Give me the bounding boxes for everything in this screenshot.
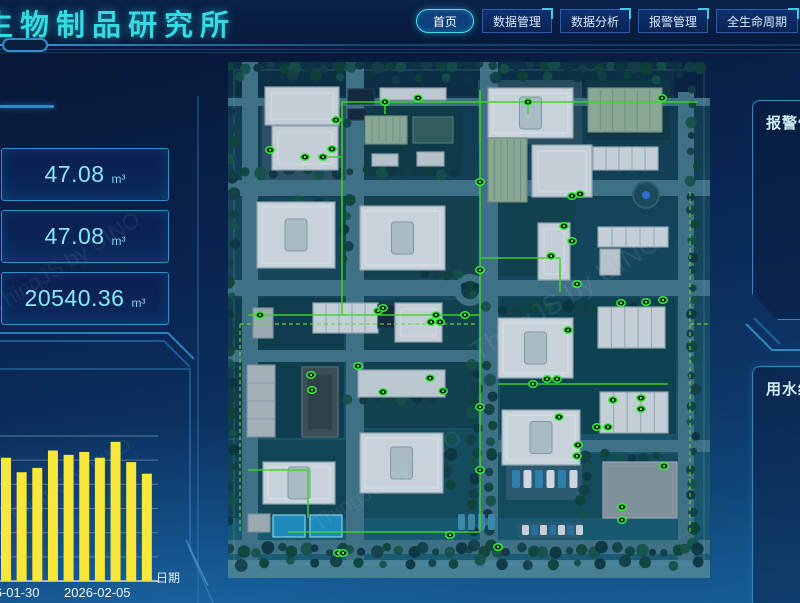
- left-top-accent-line: [0, 105, 54, 108]
- nav-tab-4[interactable]: 全生命周期: [716, 9, 798, 33]
- nav-tab-1[interactable]: 数据管理: [482, 9, 552, 33]
- building: [532, 145, 592, 197]
- building: [358, 370, 445, 397]
- water-stats-panel: 用水统计: [752, 366, 800, 603]
- stat-box-0: 47.08m³: [1, 148, 169, 201]
- x-tick-label: 2026-01-30: [0, 585, 40, 600]
- building: [417, 152, 444, 166]
- nav-tab-0[interactable]: 首页: [416, 9, 474, 33]
- building: [348, 109, 367, 120]
- header-capsule-decoration: [2, 38, 48, 52]
- alarm-panel: 报警信息: [752, 100, 800, 320]
- stat-value: 47.08: [44, 161, 104, 188]
- nav-tab-3[interactable]: 报警管理: [638, 9, 708, 33]
- building: [313, 303, 378, 333]
- x-axis-title: 日期: [156, 569, 180, 586]
- water-stats-panel-title: 用水统计: [753, 367, 800, 399]
- main-nav: 首页数据管理数据分析报警管理全生命周期: [416, 9, 798, 33]
- stat-box-1: 47.08m³: [1, 210, 169, 263]
- top-bar: 生物制品研究所 首页数据管理数据分析报警管理全生命周期: [0, 0, 800, 53]
- building: [273, 515, 305, 537]
- building: [413, 117, 453, 143]
- building: [593, 147, 658, 170]
- campus-map[interactable]: ThingJS by UINOThingJS by UINO: [228, 62, 710, 578]
- x-tick-label: 2026-02-05: [64, 585, 131, 600]
- building: [380, 88, 446, 100]
- campus-map-canvas[interactable]: ThingJS by UINOThingJS by UINO: [228, 62, 710, 578]
- stat-unit: m³: [112, 172, 126, 186]
- building: [598, 307, 665, 348]
- nav-tab-2[interactable]: 数据分析: [560, 9, 630, 33]
- building: [538, 223, 570, 280]
- building: [603, 462, 677, 518]
- stat-value: 47.08: [44, 223, 104, 250]
- building: [248, 514, 270, 532]
- stat-unit: m³: [131, 296, 145, 310]
- chart-panel-border: [0, 360, 230, 603]
- building: [372, 154, 398, 166]
- left-frame-line: [197, 96, 199, 603]
- stat-unit: m³: [112, 234, 126, 248]
- watermark: ThingJS by UINO: [5, 434, 135, 526]
- stat-box-2: 20540.36m³: [1, 272, 169, 325]
- header-divider: [0, 44, 800, 46]
- stat-value: 20540.36: [25, 285, 125, 312]
- alarm-panel-title: 报警信息: [753, 101, 800, 133]
- dashboard-page: 生物制品研究所 首页数据管理数据分析报警管理全生命周期 47.08m³47.08…: [0, 0, 800, 603]
- water-usage-bar-chart: [0, 368, 225, 603]
- header-divider-2: [0, 49, 800, 50]
